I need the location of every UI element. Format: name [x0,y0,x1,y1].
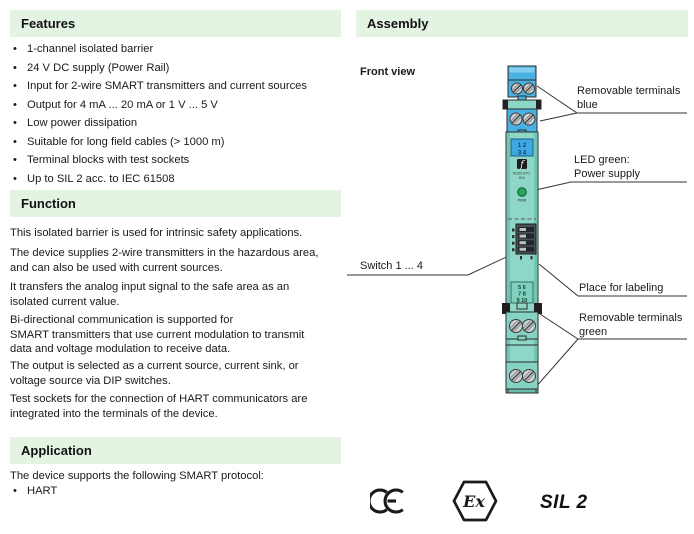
sil-2-mark: SIL 2 [540,492,588,514]
svg-text:7 8: 7 8 [518,292,526,298]
application-list: HART [10,485,344,504]
list-item: Up to SIL 2 acc. to IEC 61508 [10,173,344,192]
application-header: Application [10,437,341,464]
svg-text:5 6: 5 6 [518,285,526,291]
function-header: Function [10,190,341,217]
callout-removable-terminals-green: Removable terminals green [579,312,682,339]
assembly-figure: 1 2 3 4 f KCD2-STC- Ex1 PWR [347,44,694,426]
function-paragraph: Bi-directional communication is supporte… [10,313,344,357]
list-item: HART [10,485,344,504]
svg-text:Ex: Ex [462,492,485,511]
application-intro: The device supports the following SMART … [10,469,344,484]
screw-icon [510,370,523,383]
function-paragraph: It transfers the analog input signal to … [10,280,344,309]
screw-icon [523,113,535,125]
dip-switch-block [512,224,536,260]
list-item: 1-channel isolated barrier [10,43,344,62]
svg-text:Ex1: Ex1 [519,176,525,180]
function-title: Function [21,196,76,211]
screw-icon [510,320,523,333]
assembly-title: Assembly [367,16,428,31]
list-item: Low power dissipation [10,117,344,136]
svg-text:3 4: 3 4 [518,151,527,157]
terminal-block-green-upper [502,303,542,340]
list-item: Suitable for long field cables (> 1000 m… [10,136,344,155]
screw-icon [510,113,522,125]
callout-switch-1-4: Switch 1 ... 4 [360,260,423,274]
assembly-header: Assembly [356,10,688,37]
function-paragraph: The output is selected as a current sour… [10,359,344,388]
terminal-block-green-lower [506,362,538,393]
screw-icon [524,83,535,94]
screw-icon [523,320,536,333]
callout-place-for-labeling: Place for labeling [579,282,663,296]
features-list: 1-channel isolated barrier 24 V DC suppl… [10,43,344,191]
power-led: PWR [518,188,527,203]
terminal-block-blue-lower [503,100,541,134]
screw-icon [512,83,523,94]
application-title: Application [21,443,92,458]
list-item: 24 V DC supply (Power Rail) [10,62,344,81]
callout-led-green: LED green: Power supply [574,154,640,181]
terminal-number-label-blue: 1 2 3 4 [511,139,533,157]
function-paragraph: This isolated barrier is used for intrin… [10,226,344,241]
list-item: Output for 4 mA ... 20 mA or 1 V ... 5 V [10,99,344,118]
features-header: Features [10,10,341,37]
front-view-label: Front view [360,66,415,78]
terminal-block-blue-top [508,66,536,100]
screw-icon [523,370,536,383]
ce-mark-icon [370,487,408,515]
ex-atex-mark-icon: Ex [452,480,498,522]
svg-text:KCD2-STC-: KCD2-STC- [513,172,531,176]
function-paragraph: The device supplies 2-wire transmitters … [10,246,344,275]
datasheet-page: { "colors": { "section_header_bg": "#e3f… [0,0,694,534]
function-paragraph: Test sockets for the connection of HART … [10,392,344,421]
features-title: Features [21,16,75,31]
callout-removable-terminals-blue: Removable terminals blue [577,85,680,112]
brand-logo-icon: f [517,159,527,170]
list-item: Input for 2-wire SMART transmitters and … [10,80,344,99]
svg-text:1 2: 1 2 [518,143,527,149]
terminal-number-label-green: 5 6 7 8 9 10 [511,282,533,304]
led-label: PWR [518,199,527,203]
list-item: Terminal blocks with test sockets [10,154,344,173]
